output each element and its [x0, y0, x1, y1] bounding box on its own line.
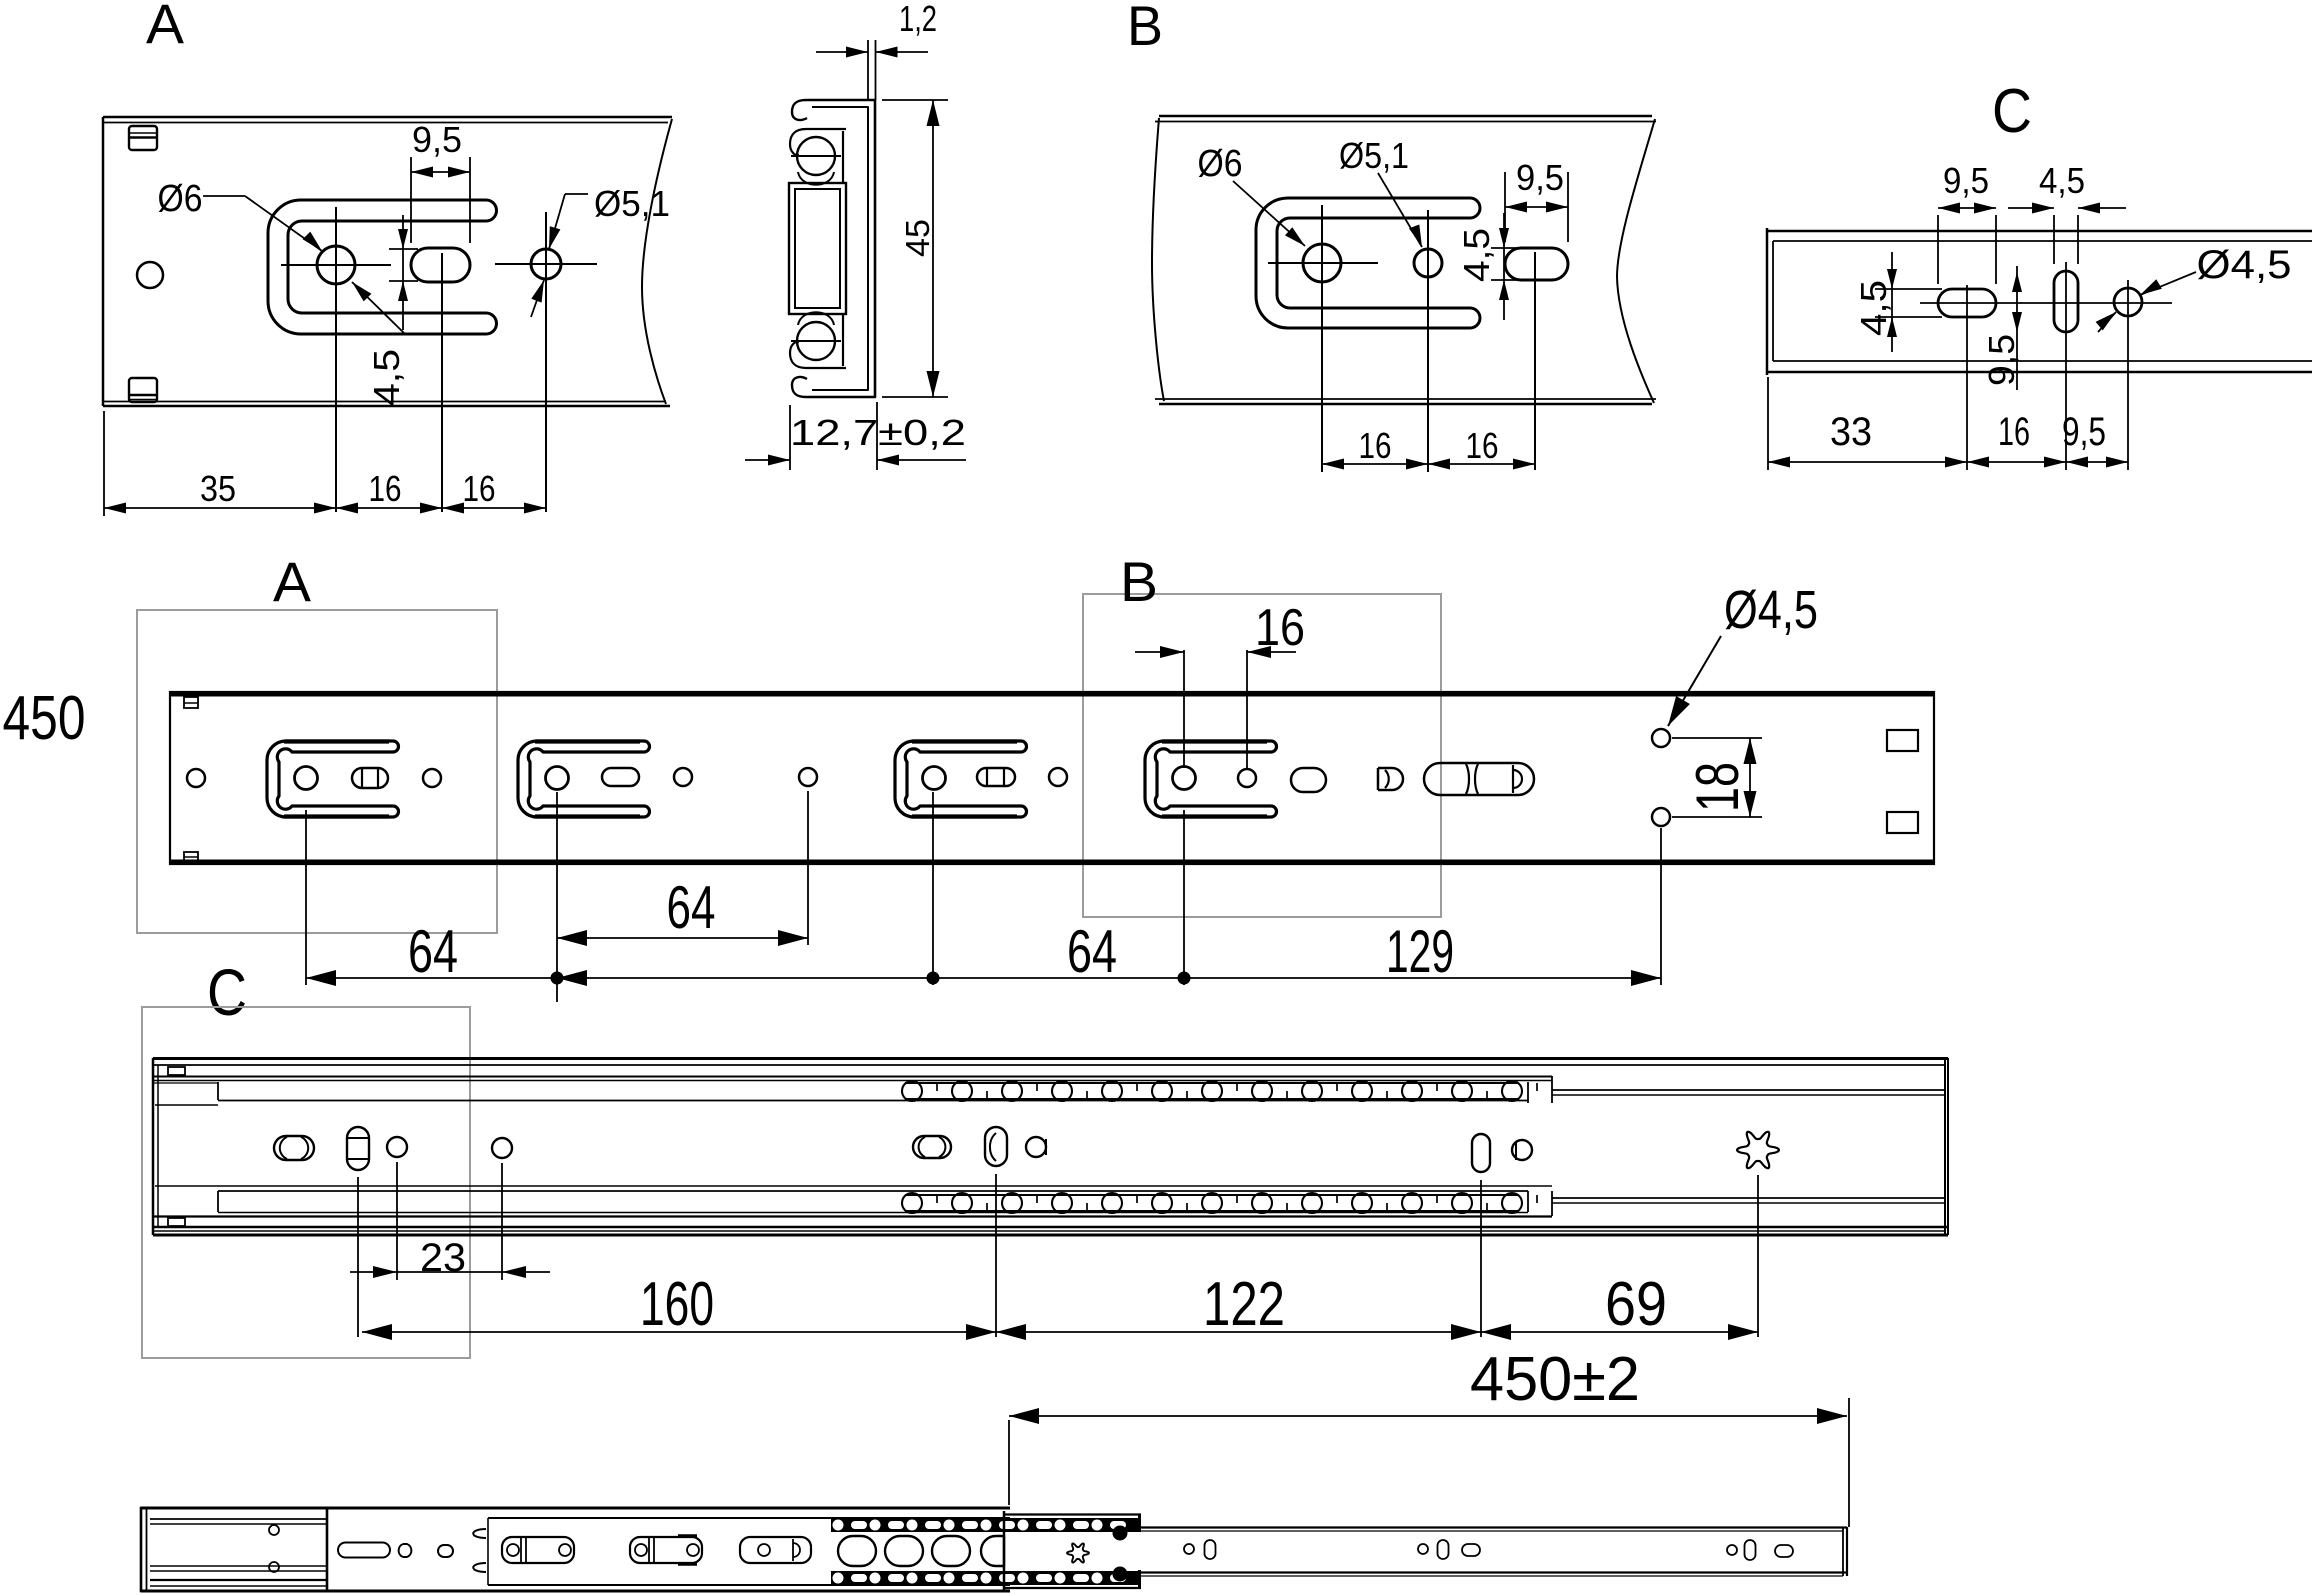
svg-text:45: 45	[899, 219, 936, 257]
svg-text:Ø5,1: Ø5,1	[1339, 135, 1409, 176]
svg-text:C: C	[1992, 77, 2032, 146]
svg-text:C: C	[207, 955, 247, 1029]
svg-text:Ø6: Ø6	[1198, 143, 1243, 185]
svg-text:64: 64	[408, 918, 458, 985]
svg-text:4,5: 4,5	[1853, 280, 1894, 336]
svg-text:16: 16	[463, 468, 496, 509]
svg-text:122: 122	[1203, 1270, 1285, 1339]
svg-text:Ø4,5: Ø4,5	[1724, 580, 1818, 640]
svg-text:B: B	[1127, 0, 1163, 57]
svg-text:4,5: 4,5	[1456, 228, 1497, 282]
svg-text:9,5: 9,5	[1516, 157, 1564, 198]
svg-text:A: A	[273, 550, 312, 613]
svg-text:450±2: 450±2	[1470, 1345, 1640, 1414]
svg-text:64: 64	[1067, 918, 1117, 985]
svg-text:Ø5,1: Ø5,1	[594, 183, 670, 224]
svg-text:9,5: 9,5	[412, 119, 462, 160]
svg-text:16: 16	[1255, 599, 1305, 657]
svg-text:12,7±0,2: 12,7±0,2	[790, 412, 966, 453]
svg-text:Ø4,5: Ø4,5	[2197, 243, 2292, 287]
svg-text:129: 129	[1386, 918, 1454, 985]
svg-text:18: 18	[1684, 762, 1751, 812]
svg-text:9,5: 9,5	[1943, 160, 1989, 201]
svg-text:69: 69	[1605, 1270, 1667, 1339]
svg-text:33: 33	[1830, 410, 1872, 454]
svg-text:23: 23	[420, 1236, 466, 1280]
svg-text:1,2: 1,2	[899, 0, 937, 39]
svg-text:9,5: 9,5	[2062, 410, 2106, 454]
svg-text:64: 64	[667, 874, 716, 941]
svg-text:160: 160	[640, 1270, 714, 1339]
svg-text:B: B	[1120, 550, 1158, 613]
svg-text:16: 16	[369, 468, 402, 509]
svg-text:Ø6: Ø6	[158, 178, 203, 220]
svg-text:16: 16	[1466, 425, 1499, 466]
svg-text:4,5: 4,5	[366, 349, 407, 406]
svg-text:9,5: 9,5	[1981, 334, 2022, 386]
svg-text:A: A	[146, 0, 185, 55]
svg-text:4,5: 4,5	[2039, 160, 2085, 201]
svg-text:450: 450	[3, 684, 86, 753]
svg-text:16: 16	[1998, 410, 2030, 454]
svg-text:16: 16	[1359, 425, 1392, 466]
svg-text:35: 35	[200, 468, 236, 509]
